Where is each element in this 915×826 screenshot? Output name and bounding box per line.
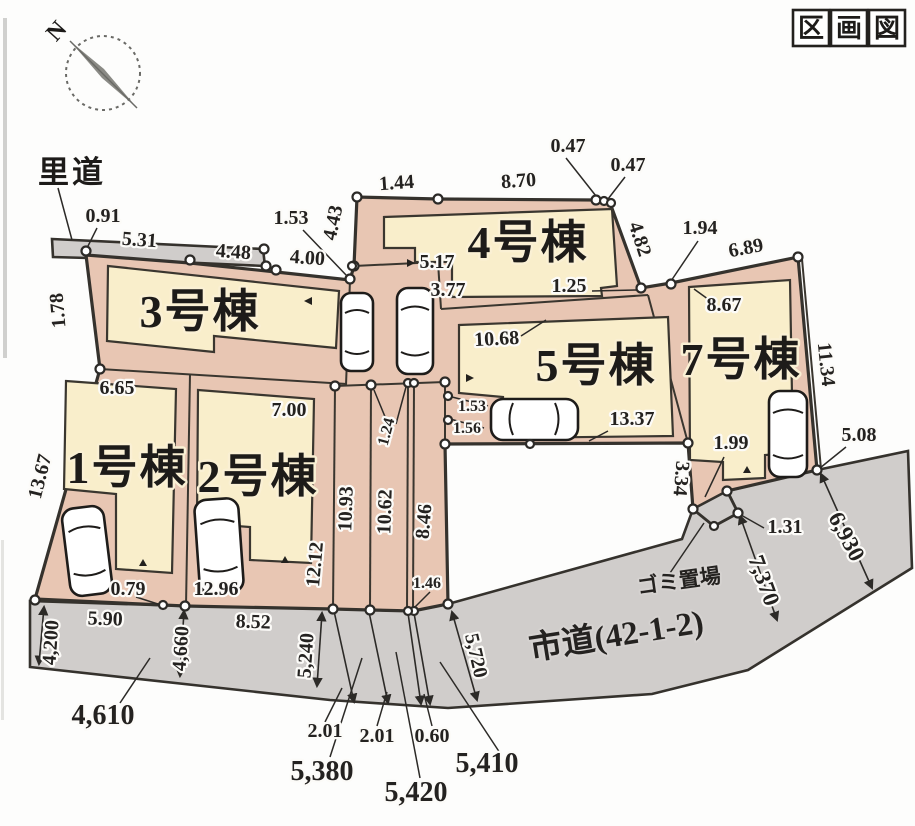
compass-north-label: N xyxy=(41,16,72,47)
survey-marker xyxy=(329,605,338,614)
survey-marker xyxy=(441,440,450,449)
car-icon xyxy=(341,293,373,371)
dim-508: 5.08 xyxy=(842,424,877,446)
survey-marker xyxy=(444,392,452,400)
dim-5240: 5,240 xyxy=(293,632,318,678)
dim-4610: 4,610 xyxy=(72,700,135,731)
car-icon xyxy=(769,391,807,477)
dim-1337: 13.37 xyxy=(610,408,655,430)
dim-5380: 5,380 xyxy=(291,756,354,787)
lot-label-1: 1号棟 xyxy=(67,442,188,493)
dim-400: 4.00 xyxy=(289,246,325,270)
dim-047a: 0.47 xyxy=(551,135,586,157)
dim-156: 1.56 xyxy=(453,420,481,437)
dim-1296: 12.96 xyxy=(194,578,239,600)
title-char: 図 xyxy=(874,14,900,43)
lot-label-3: 3号棟 xyxy=(140,286,261,337)
lot-label-4: 4号棟 xyxy=(468,217,589,268)
dim-377: 3.77 xyxy=(431,279,466,301)
survey-marker xyxy=(348,262,356,270)
car-icon xyxy=(491,399,578,440)
dim-665: 6.65 xyxy=(100,377,135,399)
dim-125: 1.25 xyxy=(552,275,587,297)
survey-marker xyxy=(434,195,443,204)
dim-531: 5.31 xyxy=(121,228,157,252)
survey-marker xyxy=(444,416,452,424)
dim-1062: 10.62 xyxy=(373,489,397,535)
survey-marker xyxy=(31,596,40,605)
page-title: 区 画 図 xyxy=(793,10,905,46)
dim-443: 4.43 xyxy=(319,203,348,242)
dim-146: 1.46 xyxy=(413,575,441,592)
lot-label-2: 2号棟 xyxy=(198,451,319,502)
survey-marker xyxy=(260,245,269,254)
dim-4200: 4,200 xyxy=(38,619,63,665)
dim-153b: 1.53 xyxy=(458,398,486,415)
dim-334: 3.34 xyxy=(668,460,693,497)
dim-590: 5.90 xyxy=(87,607,123,630)
dim-091: 0.91 xyxy=(86,205,121,227)
dim-1068: 10.68 xyxy=(474,327,520,351)
dim-201a: 2.01 xyxy=(308,720,343,742)
dim-5420: 5,420 xyxy=(385,777,448,808)
survey-marker xyxy=(813,466,822,475)
dim-852: 8.52 xyxy=(235,610,271,633)
survey-marker xyxy=(526,440,534,448)
dim-700: 7.00 xyxy=(272,399,307,421)
survey-marker xyxy=(734,509,743,518)
dim-846: 8.46 xyxy=(412,503,437,540)
dim-448: 4.48 xyxy=(215,240,251,264)
survey-marker xyxy=(82,247,91,256)
scan-artifact xyxy=(3,18,7,358)
dim-178: 1.78 xyxy=(46,292,71,329)
survey-marker xyxy=(404,607,412,615)
dim-144: 1.44 xyxy=(378,171,414,195)
survey-marker xyxy=(262,262,271,271)
compass: N xyxy=(41,16,140,110)
survey-marker xyxy=(331,382,340,391)
survey-marker xyxy=(684,439,693,448)
survey-marker xyxy=(346,275,355,284)
survey-marker xyxy=(181,602,190,611)
survey-marker xyxy=(159,601,167,609)
dim-867: 8.67 xyxy=(707,294,742,316)
dim-517: 5.17 xyxy=(420,251,455,273)
survey-marker xyxy=(607,199,615,207)
survey-marker xyxy=(444,600,453,609)
dim-4660: 4,660 xyxy=(168,625,193,671)
survey-marker xyxy=(667,280,676,289)
dim-689: 6.89 xyxy=(727,234,766,262)
title-char: 画 xyxy=(836,14,862,43)
dim-1093: 10.93 xyxy=(334,486,358,532)
survey-marker xyxy=(710,522,718,530)
scan-artifact xyxy=(1,540,4,720)
car-icon xyxy=(61,505,113,597)
dim-1134: 11.34 xyxy=(813,341,839,387)
survey-marker xyxy=(367,381,376,390)
survey-marker xyxy=(186,256,195,265)
dim-047b: 0.47 xyxy=(611,154,646,176)
survey-marker xyxy=(410,379,418,387)
dim-1212: 12.12 xyxy=(302,541,328,588)
survey-marker xyxy=(637,284,646,293)
survey-marker xyxy=(272,266,281,275)
dim-060: 0.60 xyxy=(415,725,450,747)
survey-marker xyxy=(353,193,362,202)
dim-153a: 1.53 xyxy=(274,207,309,229)
dim-199: 1.99 xyxy=(714,432,749,454)
dim-1367: 13.67 xyxy=(24,452,56,501)
survey-marker xyxy=(794,253,803,262)
survey-marker xyxy=(689,505,698,514)
dim-131: 1.31 xyxy=(768,516,803,538)
lot-label-5: 5号棟 xyxy=(536,340,657,391)
title-char: 区 xyxy=(798,14,824,43)
dim-870: 8.70 xyxy=(500,169,536,193)
plot-map: N 区 画 図 里道 市道(42-1-2) ゴミ置場 3号棟 4号棟 5号棟 7… xyxy=(0,0,915,826)
lot-label-7: 7号棟 xyxy=(681,334,802,385)
survey-marker xyxy=(366,606,375,615)
survey-marker xyxy=(723,487,732,496)
dim-201b: 2.01 xyxy=(360,725,395,747)
car-icon xyxy=(397,288,433,374)
dim-194: 1.94 xyxy=(683,217,718,239)
road-satomichi-label: 里道 xyxy=(38,155,106,190)
dim-079: 0.79 xyxy=(111,578,146,600)
dim-5410: 5,410 xyxy=(456,748,519,779)
survey-marker xyxy=(96,365,105,374)
compass-needle-line xyxy=(70,41,137,108)
survey-marker xyxy=(441,378,450,387)
